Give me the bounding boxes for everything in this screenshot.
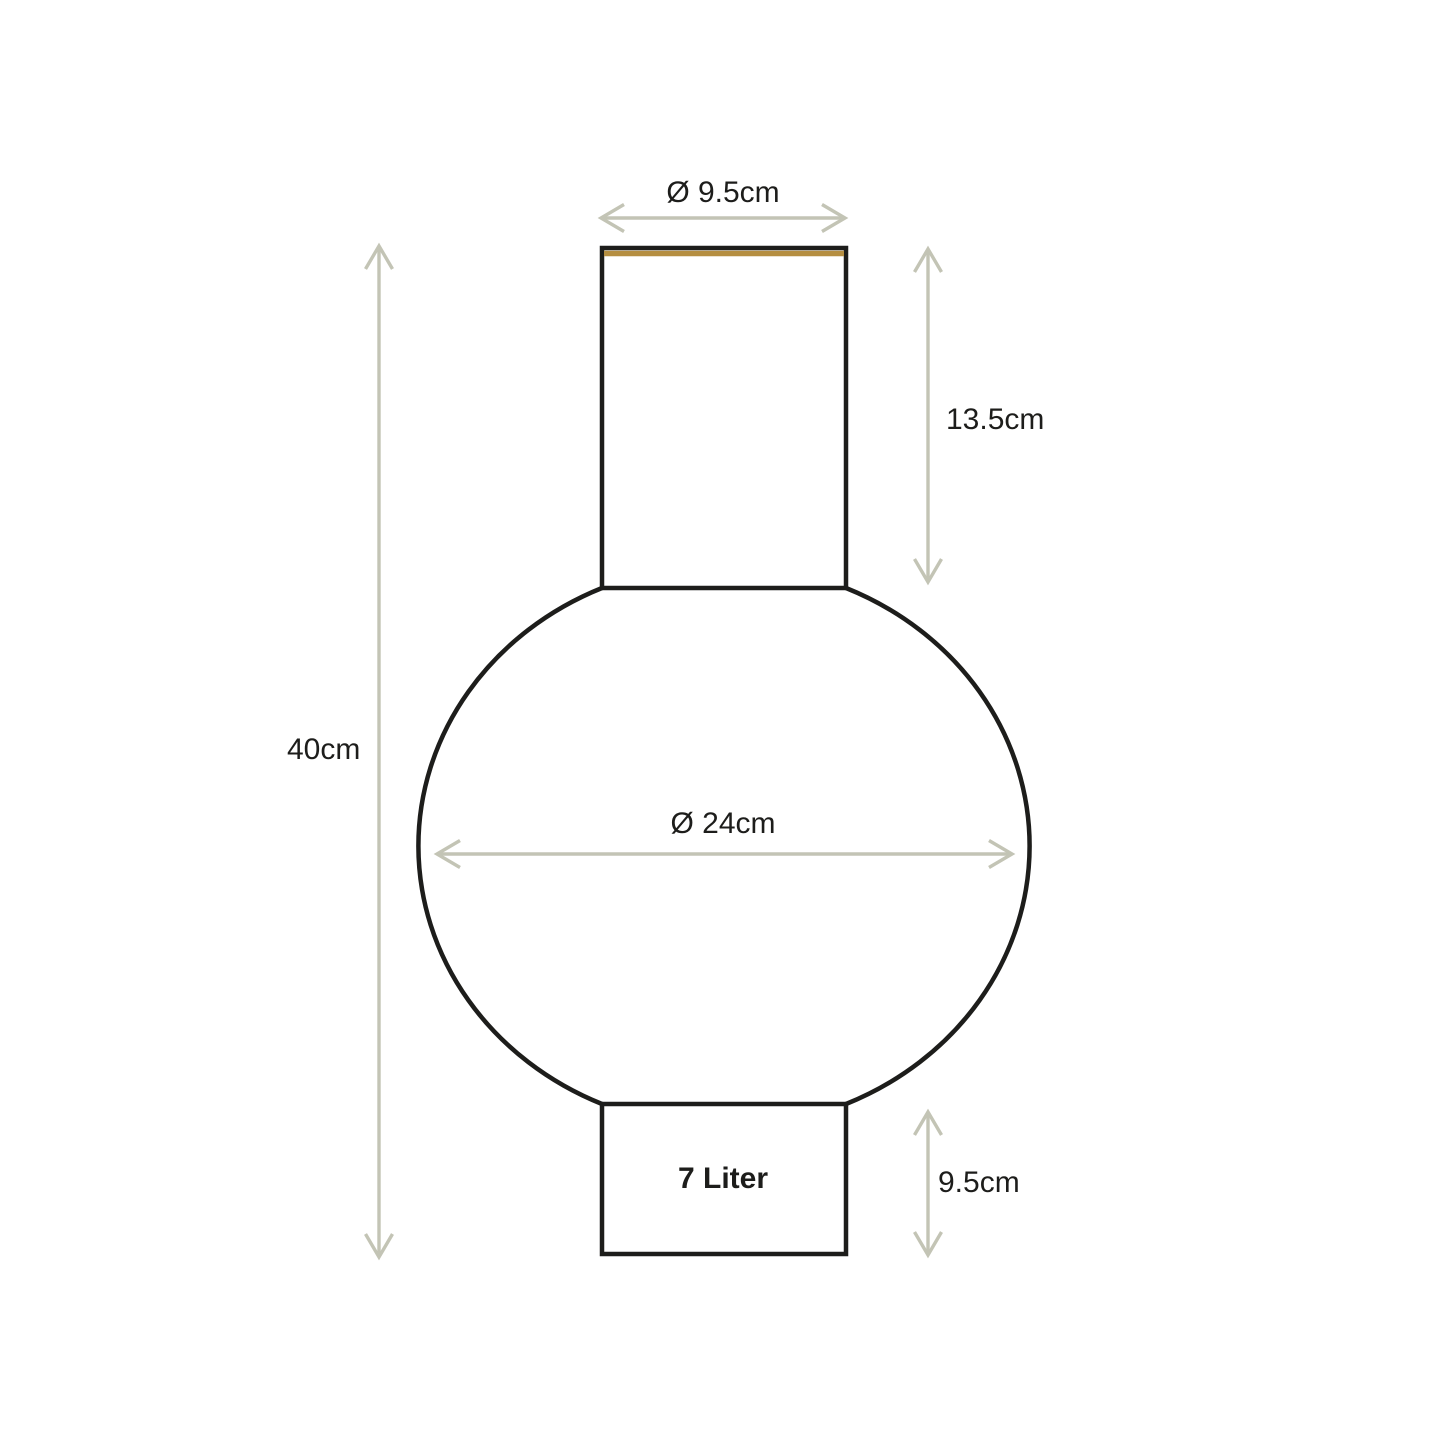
svg-text:7 Liter: 7 Liter	[678, 1162, 768, 1195]
svg-text:40cm: 40cm	[287, 733, 360, 766]
svg-text:Ø 9.5cm: Ø 9.5cm	[666, 176, 779, 209]
svg-text:9.5cm: 9.5cm	[938, 1166, 1020, 1199]
svg-text:Ø 24cm: Ø 24cm	[670, 807, 775, 840]
svg-text:13.5cm: 13.5cm	[946, 403, 1044, 436]
